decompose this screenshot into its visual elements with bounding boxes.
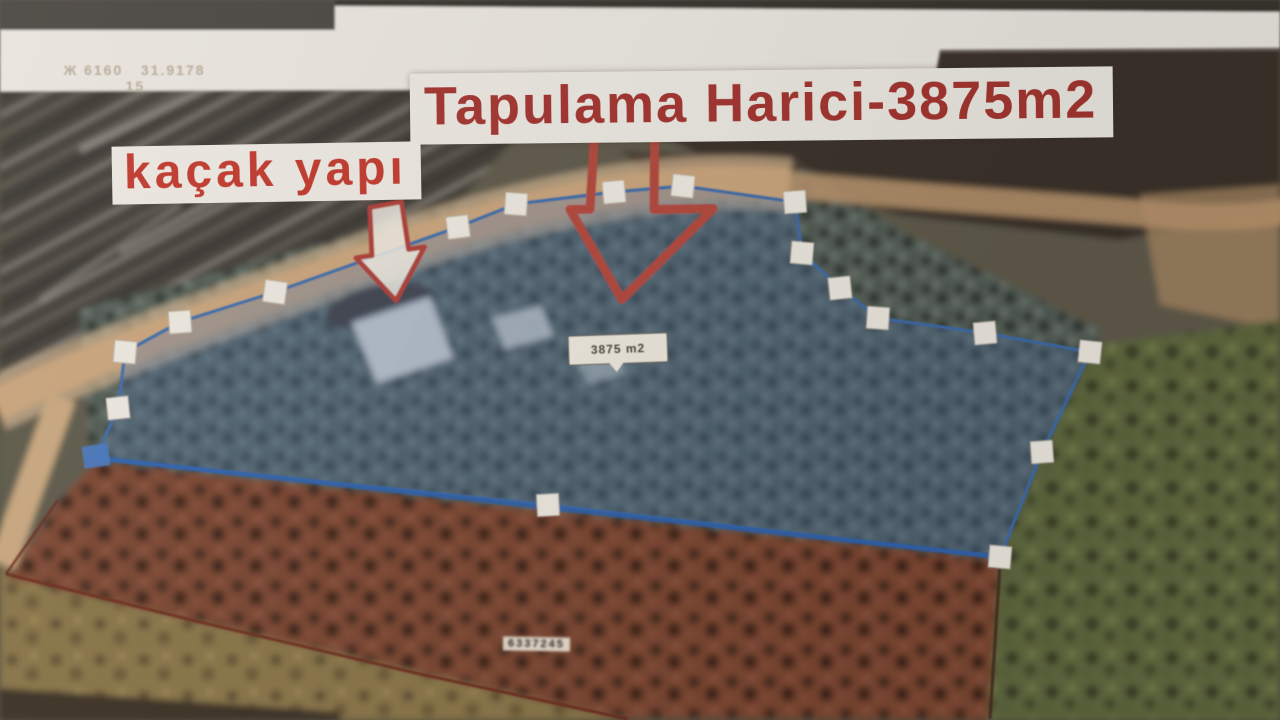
illegal-building-annotation: kaçak yapı (112, 141, 422, 205)
vertex-marker (973, 321, 997, 345)
vertex-marker (263, 280, 288, 305)
parcel-tag-label: 6337245 (503, 636, 570, 651)
vertex-marker (866, 306, 889, 329)
vertex-marker (113, 340, 137, 364)
title-annotation: Tapulama Harici-3875m2 (410, 66, 1114, 145)
parcel-corner-handle (82, 443, 111, 468)
vertex-marker (783, 190, 806, 213)
vertex-marker (602, 180, 626, 204)
vertex-marker (671, 174, 695, 198)
coordinates-secondary: 15 (126, 78, 146, 94)
vertex-marker (504, 192, 527, 215)
coordinates-text: Ж 6160 31.9178 (64, 62, 206, 78)
area-callout-bubble: 3875 m2 (568, 332, 669, 365)
vertex-marker (828, 276, 852, 300)
vertex-marker (106, 396, 130, 420)
scan-corner-block (0, 0, 335, 30)
annotated-satellite-photo: Ж 6160 31.9178 15 Tapulama Harici-3875m2… (0, 0, 1280, 720)
vertex-marker (988, 545, 1012, 569)
vertex-marker (446, 215, 471, 240)
vertex-marker (790, 241, 814, 265)
scan-coordinates: Ж 6160 31.9178 15 (40, 46, 206, 110)
vertex-marker (168, 310, 191, 333)
vertex-marker (536, 493, 559, 516)
vertex-marker (1078, 340, 1102, 364)
vertex-marker (1030, 440, 1053, 463)
